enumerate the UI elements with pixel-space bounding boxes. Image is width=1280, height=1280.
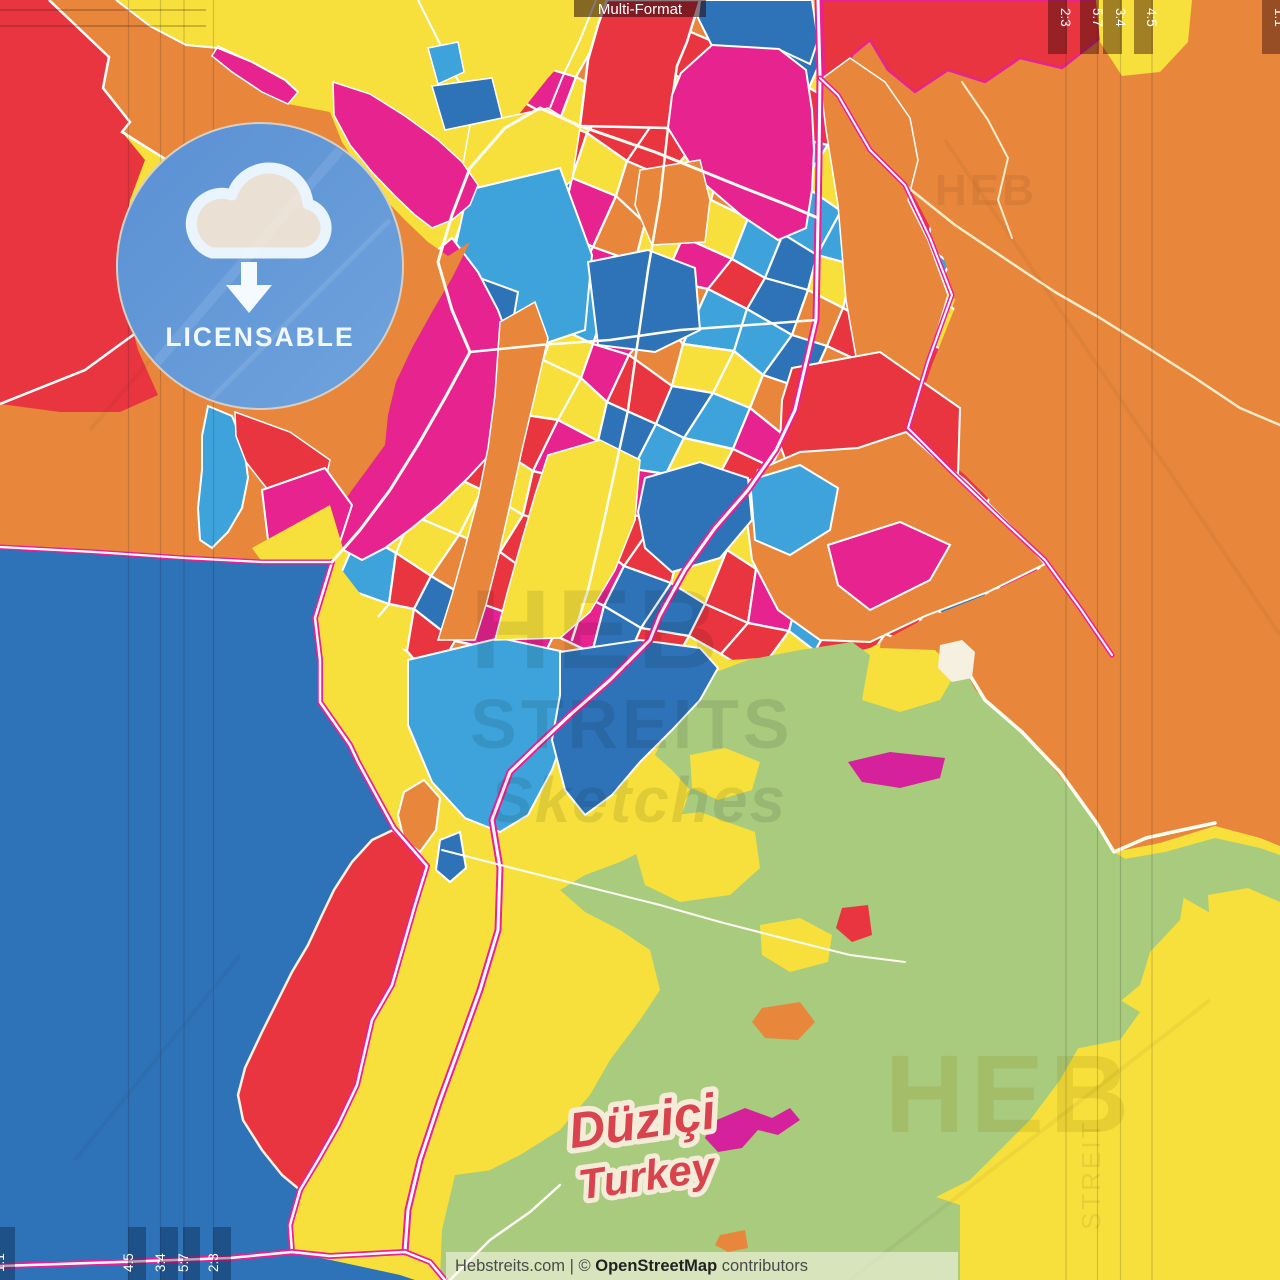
svg-text:STREITS: STREITS (470, 685, 794, 763)
svg-text:1:1: 1:1 (1272, 8, 1280, 27)
svg-text:HEB: HEB (935, 166, 1037, 215)
svg-text:5:7: 5:7 (176, 1253, 191, 1272)
svg-text:3:4: 3:4 (153, 1253, 168, 1272)
svg-text:LICENSABLE: LICENSABLE (165, 322, 354, 352)
svg-text:Sketches: Sketches (490, 764, 787, 836)
svg-text:1:1: 1:1 (0, 1253, 7, 1272)
svg-text:STREIT: STREIT (1076, 1120, 1106, 1230)
svg-text:2:3: 2:3 (1058, 8, 1073, 27)
svg-text:Hebstreits.com | © OpenStreetM: Hebstreits.com | © OpenStreetMap contrib… (455, 1257, 808, 1275)
svg-text:4:5: 4:5 (1144, 8, 1159, 27)
svg-text:2:3: 2:3 (206, 1253, 221, 1272)
svg-text:HEB: HEB (470, 567, 724, 692)
svg-text:3:4: 3:4 (1113, 8, 1128, 27)
svg-text:Multi-Format: Multi-Format (598, 1, 683, 18)
svg-text:5:7: 5:7 (1090, 8, 1105, 27)
svg-text:4:5: 4:5 (121, 1253, 136, 1272)
